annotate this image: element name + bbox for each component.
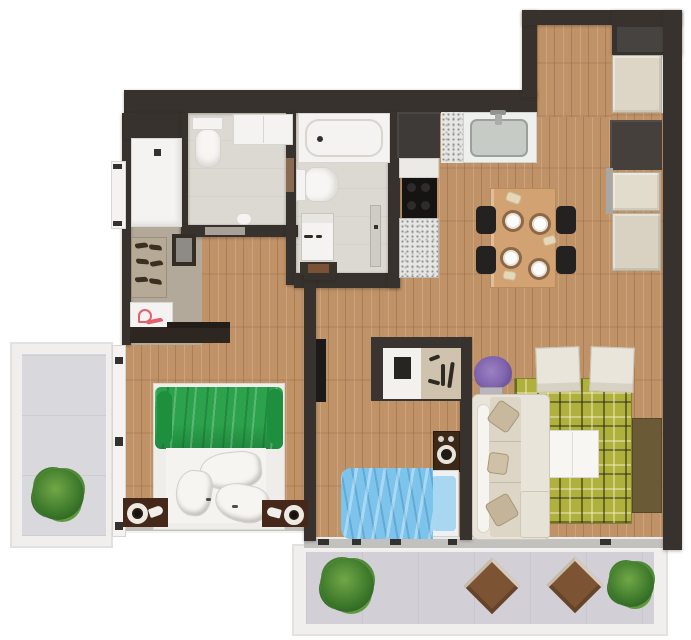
terrace-plant-right <box>608 561 654 607</box>
plate <box>502 210 524 232</box>
speaker-tweeter <box>448 436 454 442</box>
wall-study-living <box>460 337 472 540</box>
door-handle <box>374 225 378 229</box>
washer-label <box>304 235 313 238</box>
toilet2-bowl <box>305 167 339 202</box>
sheet-fold <box>232 505 238 508</box>
wall-topleft-band <box>124 113 184 138</box>
bath-bench-top <box>308 264 329 273</box>
sink-counter <box>441 112 463 163</box>
washer-panel <box>302 214 333 223</box>
plate <box>500 247 522 269</box>
plate <box>528 258 550 280</box>
sheet-fold <box>206 498 211 501</box>
closet-module <box>612 213 661 271</box>
wall-top <box>124 90 537 113</box>
terrace-plant-left <box>320 558 374 612</box>
wardrobe-knob <box>154 149 161 156</box>
window-clip <box>352 539 361 545</box>
balcony-plant <box>32 468 84 520</box>
dining-chair <box>556 246 576 274</box>
dining-chair <box>476 246 496 274</box>
window-clip <box>600 539 611 545</box>
burner <box>407 201 416 210</box>
duvet-roll <box>267 389 283 444</box>
closet-module-dark <box>610 120 662 170</box>
wall-tv <box>316 339 326 402</box>
dining-chair <box>556 206 576 234</box>
shoe <box>136 259 149 265</box>
closet-module <box>612 172 660 211</box>
duvet-roll <box>157 391 172 444</box>
sofa-chaise <box>520 491 550 538</box>
floor-plan <box>0 0 691 640</box>
lamp <box>284 505 304 525</box>
window-clip <box>318 539 329 545</box>
entrance-door <box>111 161 126 229</box>
window-clip <box>448 539 457 545</box>
lamp <box>127 503 148 524</box>
burner <box>407 183 416 192</box>
single-bed-pillow <box>432 476 456 531</box>
plate <box>529 213 551 235</box>
door-mark <box>115 437 123 446</box>
exterior-white <box>108 533 307 640</box>
shelf-decor-item <box>441 364 445 386</box>
lavender-plant <box>474 356 512 390</box>
bedroom-console-shelf <box>167 322 230 328</box>
coffee-table-seam <box>572 432 573 476</box>
speaker-woofer <box>437 445 456 464</box>
burner <box>421 201 430 210</box>
fridge <box>399 158 439 178</box>
paper-holder <box>236 213 252 225</box>
monitor <box>394 357 411 379</box>
bath2-door-leaf <box>370 205 381 267</box>
door-hinge <box>113 164 122 169</box>
bedroom-console <box>130 327 230 343</box>
closet-module <box>612 55 662 113</box>
media-sideboard <box>632 418 662 513</box>
speaker-tweeter <box>438 436 444 442</box>
throw-pillow <box>487 452 510 476</box>
faucet-spout <box>495 114 502 125</box>
window-clip <box>390 539 401 545</box>
door-hinge <box>113 221 122 226</box>
armchair <box>535 346 581 393</box>
single-bed-duvet <box>341 468 433 539</box>
coffee-table <box>547 430 599 478</box>
stool-top <box>176 238 192 262</box>
green-duvet <box>155 387 283 449</box>
shoe <box>135 277 148 283</box>
wood-floor-top-channel <box>537 25 612 117</box>
burner <box>421 183 430 192</box>
armchair <box>589 346 635 393</box>
door-mark <box>115 522 123 530</box>
stone-counter <box>399 218 439 278</box>
bathtub-drain <box>317 136 323 142</box>
corner-panel <box>617 27 663 52</box>
washer-label <box>316 235 322 238</box>
wall-hall-bath <box>181 113 188 237</box>
wall-right <box>663 10 682 550</box>
door-mark <box>115 357 123 364</box>
bath-door-gap <box>205 227 245 235</box>
dining-chair <box>476 206 496 234</box>
tall-cabinet <box>397 112 440 158</box>
vanity-seam <box>263 116 264 143</box>
toilet-bowl <box>195 129 221 168</box>
towel-shelf <box>286 158 294 192</box>
